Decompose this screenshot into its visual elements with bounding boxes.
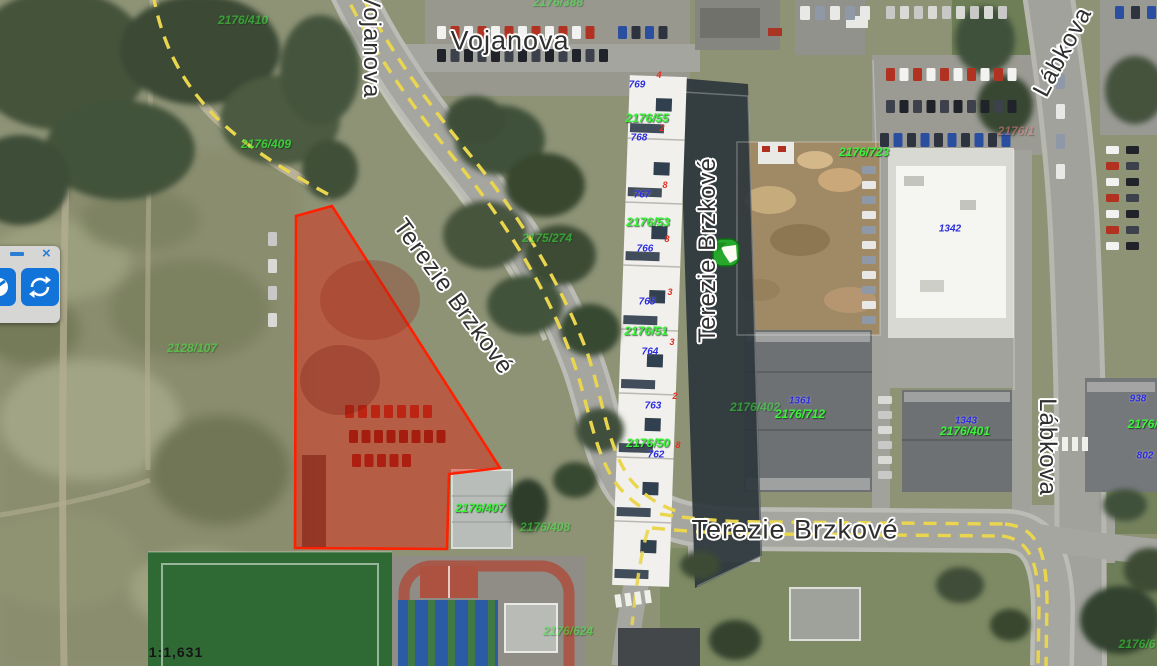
close-button[interactable]: × bbox=[42, 245, 51, 262]
partial-globe-icon bbox=[0, 275, 9, 299]
right-edge-building bbox=[1085, 378, 1157, 492]
shopping-centre-building bbox=[888, 148, 1014, 388]
refresh-icon bbox=[28, 275, 52, 299]
parcel-texture bbox=[300, 345, 380, 415]
small-building-407 bbox=[452, 470, 512, 548]
parcel-texture bbox=[320, 260, 420, 340]
construction-site bbox=[735, 142, 880, 335]
map-viewport[interactable]: × VojanovaVojanovaTerezie BrzkovéTerezie… bbox=[0, 0, 1157, 666]
parcel-structure bbox=[302, 455, 326, 547]
apartment-block-b bbox=[902, 390, 1012, 492]
refresh-button[interactable] bbox=[21, 268, 59, 306]
sports-fields bbox=[148, 552, 585, 666]
apartment-block-a bbox=[744, 330, 872, 492]
map-marker-icon[interactable] bbox=[712, 238, 740, 268]
toolbar-button-partial[interactable] bbox=[0, 268, 16, 306]
aerial-basemap[interactable] bbox=[0, 0, 1157, 666]
minimize-button[interactable] bbox=[10, 252, 24, 256]
map-toolbar: × bbox=[0, 246, 60, 323]
